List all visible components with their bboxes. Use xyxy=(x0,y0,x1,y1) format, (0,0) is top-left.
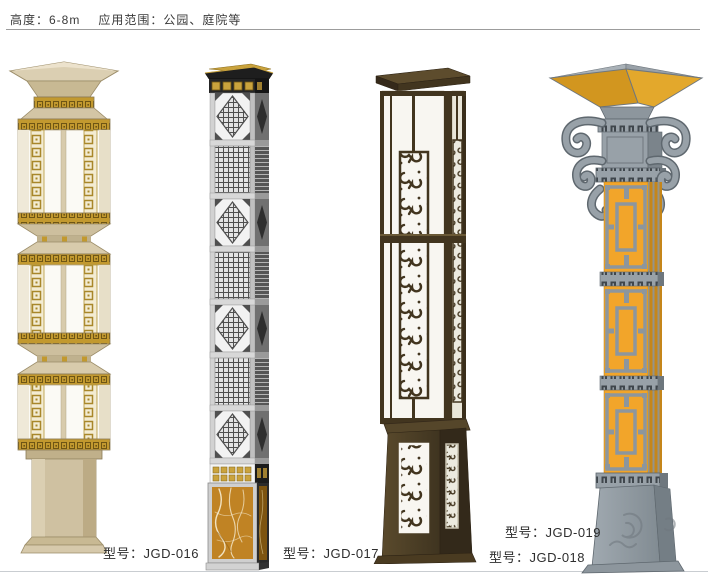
lamp-illustration-jgd-016 xyxy=(4,55,124,555)
catalog-page: 高度：6-8m应用范围：公园、庭院等 xyxy=(0,0,708,579)
lamp-figure-jgd-016 xyxy=(4,55,124,555)
model-label-jgd-018: 型号：JGD-018 xyxy=(489,547,585,566)
model-label-jgd-019: 型号：JGD-019 xyxy=(505,522,601,541)
lamp-illustration-jgd-018 xyxy=(368,64,478,564)
lamp-figure-jgd-018 xyxy=(368,64,478,564)
height-spec-label: 高度：6-8m xyxy=(10,13,80,27)
header-divider xyxy=(6,29,700,30)
lamp-illustration-jgd-019 xyxy=(546,57,706,577)
page-header: 高度：6-8m应用范围：公园、庭院等 xyxy=(10,11,259,28)
lamp-illustration-jgd-017 xyxy=(193,62,283,572)
model-label-jgd-017: 型号：JGD-017 xyxy=(283,543,379,562)
application-scope-label: 应用范围：公园、庭院等 xyxy=(98,13,241,27)
model-label-jgd-016: 型号：JGD-016 xyxy=(103,543,199,562)
lamp-figure-jgd-019 xyxy=(546,57,706,577)
lamp-figure-jgd-017 xyxy=(193,62,283,572)
